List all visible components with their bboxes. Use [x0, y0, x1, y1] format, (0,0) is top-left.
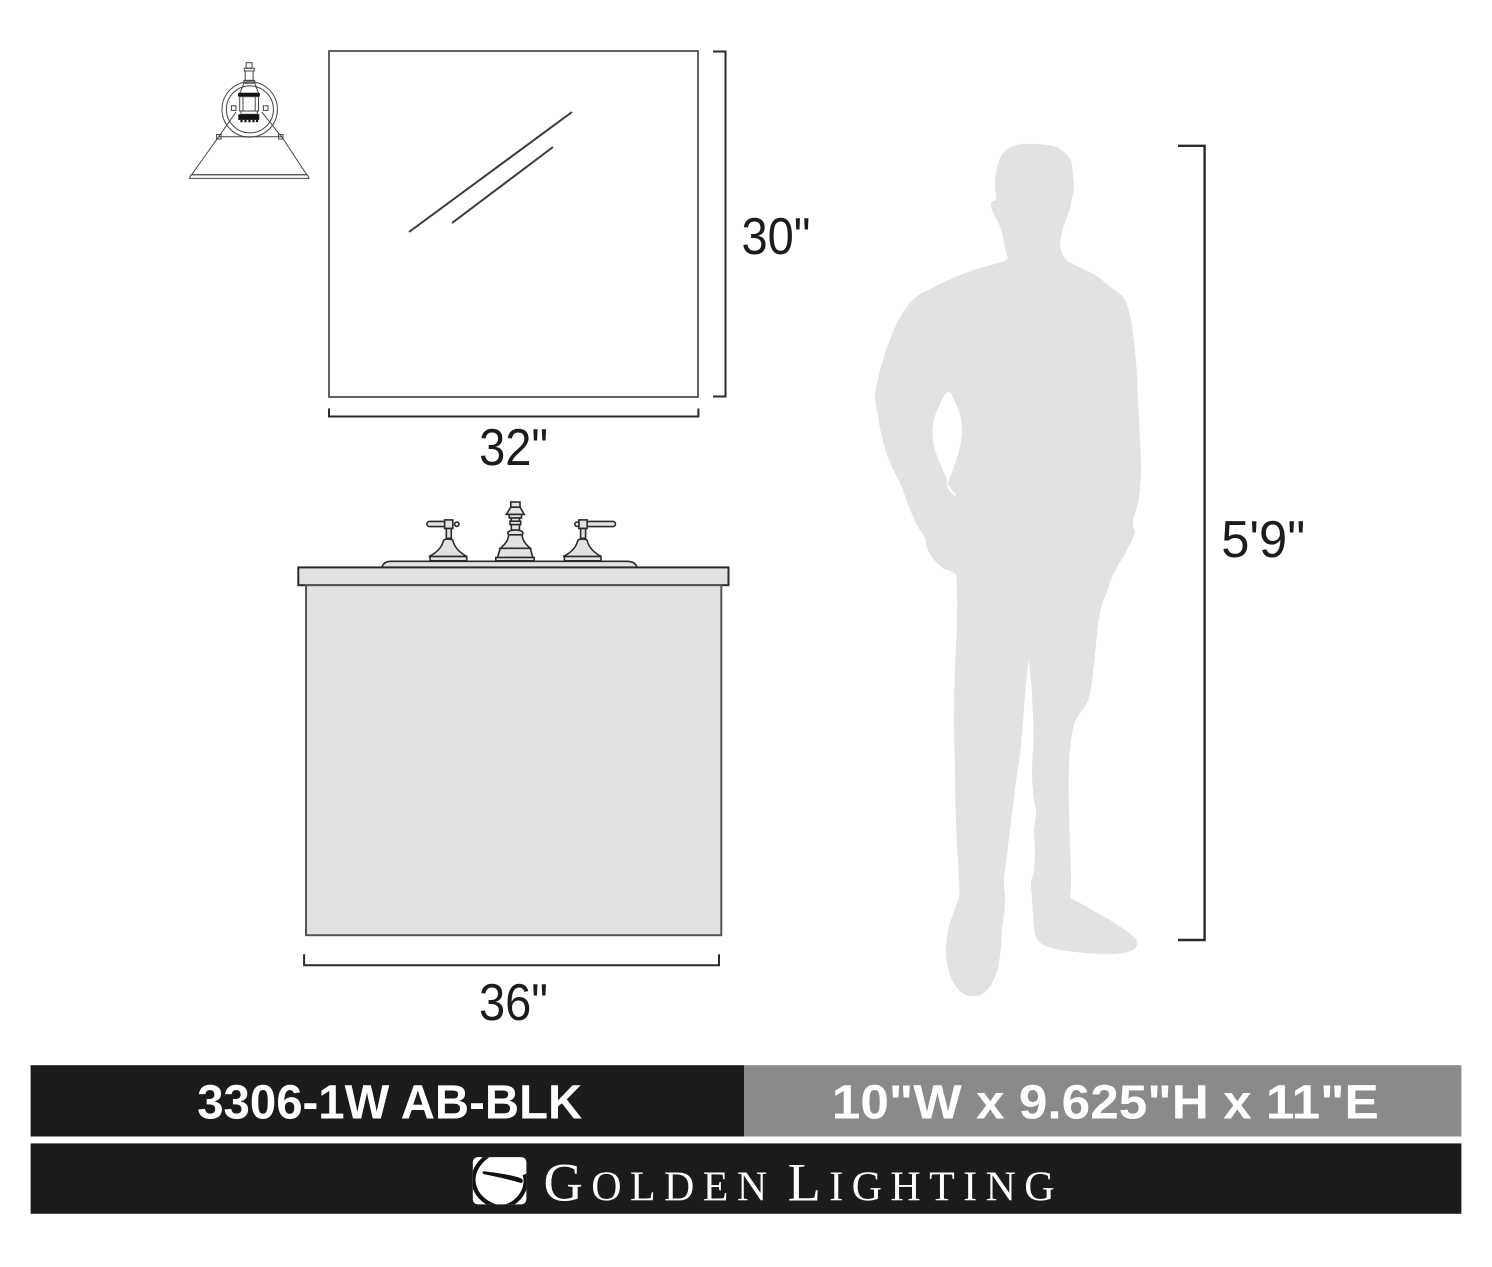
svg-text:10"W x 9.625"H x 11"E: 10"W x 9.625"H x 11"E: [832, 1077, 1379, 1130]
svg-text:32": 32": [479, 419, 548, 477]
svg-text:3306-1W AB-BLK: 3306-1W AB-BLK: [197, 1077, 582, 1130]
svg-text:5'9": 5'9": [1221, 511, 1305, 569]
svg-text:30": 30": [742, 208, 811, 266]
svg-text:36": 36": [479, 974, 548, 1032]
